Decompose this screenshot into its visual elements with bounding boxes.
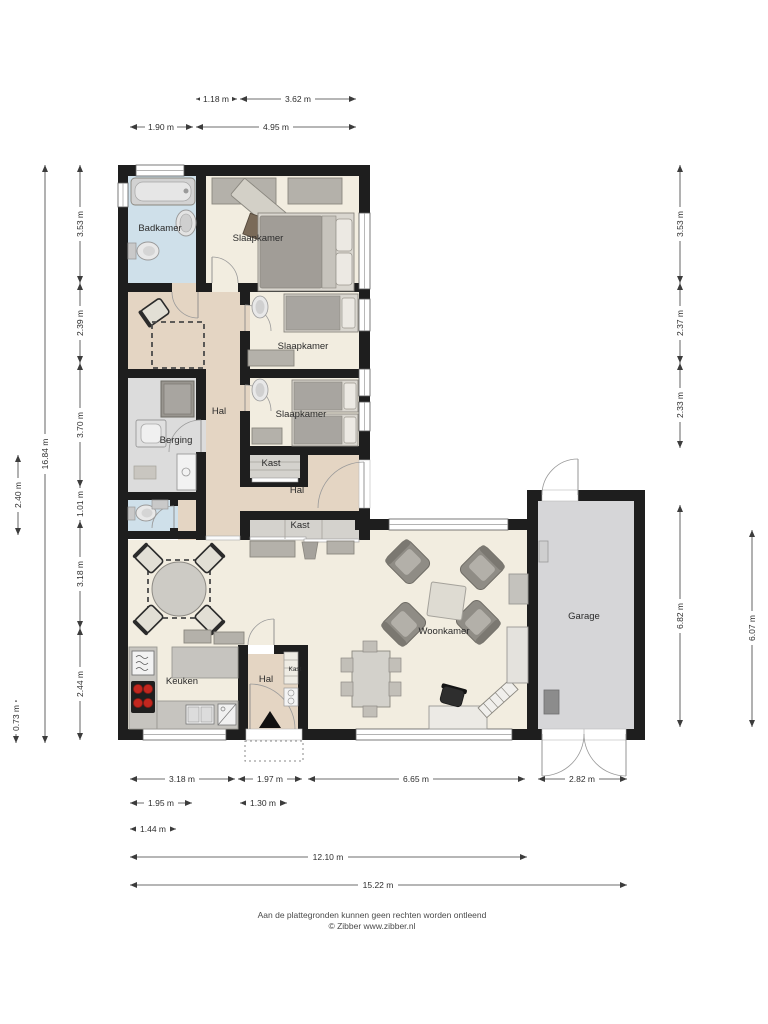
dim-top-3: 4.95 m bbox=[196, 122, 356, 132]
dim-top-0: 1.18 m bbox=[196, 94, 237, 104]
label-hal-achter: Hal bbox=[290, 485, 304, 496]
dim-bottom-3: 2.82 m bbox=[538, 774, 627, 784]
svg-text:3.70 m: 3.70 m bbox=[75, 412, 85, 438]
svg-text:1.01 m: 1.01 m bbox=[75, 491, 85, 517]
dim-bottom-0: 3.18 m bbox=[130, 774, 235, 784]
dim-left-4: 3.18 m bbox=[75, 521, 85, 628]
svg-text:1.44 m: 1.44 m bbox=[140, 824, 166, 834]
wall-wc-right-a bbox=[170, 500, 178, 506]
label-slaapkamer-2: Slaapkamer bbox=[278, 341, 329, 352]
dresser bbox=[248, 350, 294, 366]
dim-bottom-2: 6.65 m bbox=[308, 774, 525, 784]
label-keuken: Keuken bbox=[166, 676, 198, 687]
appliance-stack bbox=[284, 688, 298, 706]
wall-hal3-top-a bbox=[238, 645, 248, 654]
dim-left-total: 16.84 m bbox=[40, 165, 50, 743]
wall-nook-berging bbox=[118, 369, 206, 378]
sideboard bbox=[214, 632, 244, 644]
wardrobe bbox=[288, 178, 342, 204]
dim-bottom-4: 1.95 m bbox=[130, 798, 192, 808]
label-badkamer: Badkamer bbox=[138, 223, 181, 234]
wall-berging-right-a bbox=[196, 369, 206, 420]
dim-bottom-1: 1.97 m bbox=[238, 774, 302, 784]
dim-right-0: 3.53 m bbox=[675, 165, 685, 283]
svg-text:3.18 m: 3.18 m bbox=[75, 561, 85, 587]
sideboard bbox=[509, 574, 528, 604]
dim-bottom-6: 1.44 m bbox=[130, 824, 176, 834]
dim-left-1: 2.39 m bbox=[75, 283, 85, 363]
window bbox=[389, 519, 508, 530]
label-berging: Berging bbox=[160, 435, 193, 446]
svg-text:1.30 m: 1.30 m bbox=[250, 798, 276, 808]
desk bbox=[429, 706, 487, 729]
wall-slk2-slk3 bbox=[250, 369, 370, 378]
wall-badkamer-bottom-b bbox=[198, 283, 206, 292]
kitchen-island bbox=[172, 647, 238, 678]
label-garage: Garage bbox=[568, 611, 600, 622]
threshold bbox=[172, 283, 198, 292]
tv-cabinet bbox=[250, 541, 295, 557]
label-kast-1: Kast bbox=[261, 458, 280, 469]
footer: Aan de plattegronden kunnen geen rechten… bbox=[258, 910, 487, 931]
dim-bottom-5: 1.30 m bbox=[240, 798, 287, 808]
cooktop bbox=[131, 681, 155, 713]
svg-text:2.33 m: 2.33 m bbox=[675, 392, 685, 418]
single-bed bbox=[284, 294, 358, 332]
svg-text:1.90 m: 1.90 m bbox=[148, 122, 174, 132]
threshold bbox=[212, 283, 238, 292]
window bbox=[359, 402, 370, 431]
svg-text:0.73 m: 0.73 m bbox=[11, 705, 21, 731]
svg-text:2.37 m: 2.37 m bbox=[675, 310, 685, 336]
window bbox=[359, 213, 370, 289]
svg-text:6.07 m: 6.07 m bbox=[747, 615, 757, 641]
kitchen-sink bbox=[186, 705, 214, 724]
wall-kast1-east bbox=[300, 455, 308, 478]
washing-machine bbox=[161, 381, 194, 417]
dim-top-1: 3.62 m bbox=[240, 94, 356, 104]
footer-credit: © Zibber www.zibber.nl bbox=[328, 921, 415, 931]
footer-disclaimer: Aan de plattegronden kunnen geen rechten… bbox=[258, 910, 487, 920]
door-garage-side bbox=[542, 459, 578, 501]
garage-item bbox=[544, 690, 559, 714]
svg-text:2.44 m: 2.44 m bbox=[75, 671, 85, 697]
svg-text:6.82 m: 6.82 m bbox=[675, 603, 685, 629]
wall-badkamer-right bbox=[196, 165, 206, 292]
wall-hal3-right bbox=[298, 645, 308, 729]
svg-text:15.22 m: 15.22 m bbox=[363, 880, 394, 890]
svg-text:3.53 m: 3.53 m bbox=[75, 211, 85, 237]
washbasin bbox=[252, 379, 268, 401]
svg-text:2.39 m: 2.39 m bbox=[75, 310, 85, 336]
meter-cabinet bbox=[539, 541, 548, 562]
floor-plan: Badkamer Slaapkamer Slaapkamer Slaapkame… bbox=[0, 0, 768, 1024]
svg-text:2.82 m: 2.82 m bbox=[569, 774, 595, 784]
dim-bottom-8: 15.22 m bbox=[130, 880, 627, 890]
svg-text:6.65 m: 6.65 m bbox=[403, 774, 429, 784]
dim-right-outer: 6.07 m bbox=[747, 530, 757, 727]
svg-text:1.97 m: 1.97 m bbox=[257, 774, 283, 784]
window bbox=[143, 729, 226, 740]
svg-text:1.18 m: 1.18 m bbox=[203, 94, 229, 104]
door-garage-main bbox=[542, 729, 626, 776]
window bbox=[359, 369, 370, 396]
wall-wc-bottom bbox=[118, 531, 206, 539]
dim-left-5: 2.44 m bbox=[75, 628, 85, 740]
window bbox=[359, 299, 370, 331]
dishwasher bbox=[218, 704, 236, 725]
label-hal-entree: Hal bbox=[259, 674, 273, 685]
wall-garage-right bbox=[634, 490, 645, 740]
dim-left-0: 3.53 m bbox=[75, 165, 85, 283]
window bbox=[118, 183, 128, 207]
coffee-table bbox=[427, 582, 466, 621]
double-bed bbox=[258, 213, 354, 291]
wall-berging-wc bbox=[118, 492, 206, 500]
single-bed bbox=[292, 380, 358, 412]
svg-text:1.95 m: 1.95 m bbox=[148, 798, 174, 808]
label-kast-3: Kast bbox=[288, 666, 301, 673]
washbasin bbox=[252, 296, 268, 318]
wall-kast2-north bbox=[240, 511, 359, 520]
label-slaapkamer-1: Slaapkamer bbox=[233, 233, 284, 244]
dim-top-2: 1.90 m bbox=[130, 122, 193, 132]
dim-right-3: 6.82 m bbox=[675, 505, 685, 727]
wall-badkamer-bottom-a bbox=[118, 283, 172, 292]
wall-left bbox=[118, 165, 128, 740]
svg-text:4.95 m: 4.95 m bbox=[263, 122, 289, 132]
floorplan-page: Badkamer Slaapkamer Slaapkamer Slaapkame… bbox=[0, 0, 768, 1024]
wall-hal3-left bbox=[238, 645, 248, 729]
toilet bbox=[128, 242, 159, 260]
label-hal-boven: Hal bbox=[212, 406, 226, 417]
dim-left-small: 0.73 m bbox=[11, 700, 21, 743]
dim-bottom-7: 12.10 m bbox=[130, 852, 527, 862]
wc-shelf bbox=[152, 500, 168, 509]
cabinet bbox=[327, 541, 354, 554]
dim-right-2: 2.33 m bbox=[675, 363, 685, 448]
dim-right-1: 2.37 m bbox=[675, 283, 685, 363]
svg-text:3.53 m: 3.53 m bbox=[675, 211, 685, 237]
svg-text:16.84 m: 16.84 m bbox=[40, 439, 50, 470]
wall-slk3-bottom bbox=[240, 446, 370, 455]
oven bbox=[132, 651, 154, 675]
stool bbox=[302, 542, 318, 559]
dining-table-round bbox=[152, 562, 206, 616]
dresser bbox=[252, 428, 282, 444]
cabinet bbox=[507, 627, 528, 683]
label-kast-2: Kast bbox=[290, 520, 309, 531]
window bbox=[136, 165, 184, 176]
wall-slaapkamer1-bottom-a bbox=[206, 283, 212, 292]
wall-corridor-a bbox=[240, 292, 250, 305]
storage-cabinet bbox=[177, 454, 196, 490]
dim-left-2: 3.70 m bbox=[75, 363, 85, 487]
svg-text:12.10 m: 12.10 m bbox=[313, 852, 344, 862]
dim-left-3: 1.01 m bbox=[75, 487, 85, 521]
entrance-porch bbox=[245, 741, 303, 761]
bathtub bbox=[131, 178, 195, 205]
label-slaapkamer-3: Slaapkamer bbox=[276, 409, 327, 420]
wall-garage-left bbox=[527, 500, 538, 729]
mat bbox=[134, 466, 156, 479]
window bbox=[356, 729, 512, 740]
svg-text:3.62 m: 3.62 m bbox=[285, 94, 311, 104]
svg-text:3.18 m: 3.18 m bbox=[169, 774, 195, 784]
svg-text:2.40 m: 2.40 m bbox=[13, 482, 23, 508]
label-woonkamer: Woonkamer bbox=[418, 626, 469, 637]
dim-left-outer: 2.40 m bbox=[13, 455, 23, 535]
sideboard bbox=[184, 630, 211, 643]
